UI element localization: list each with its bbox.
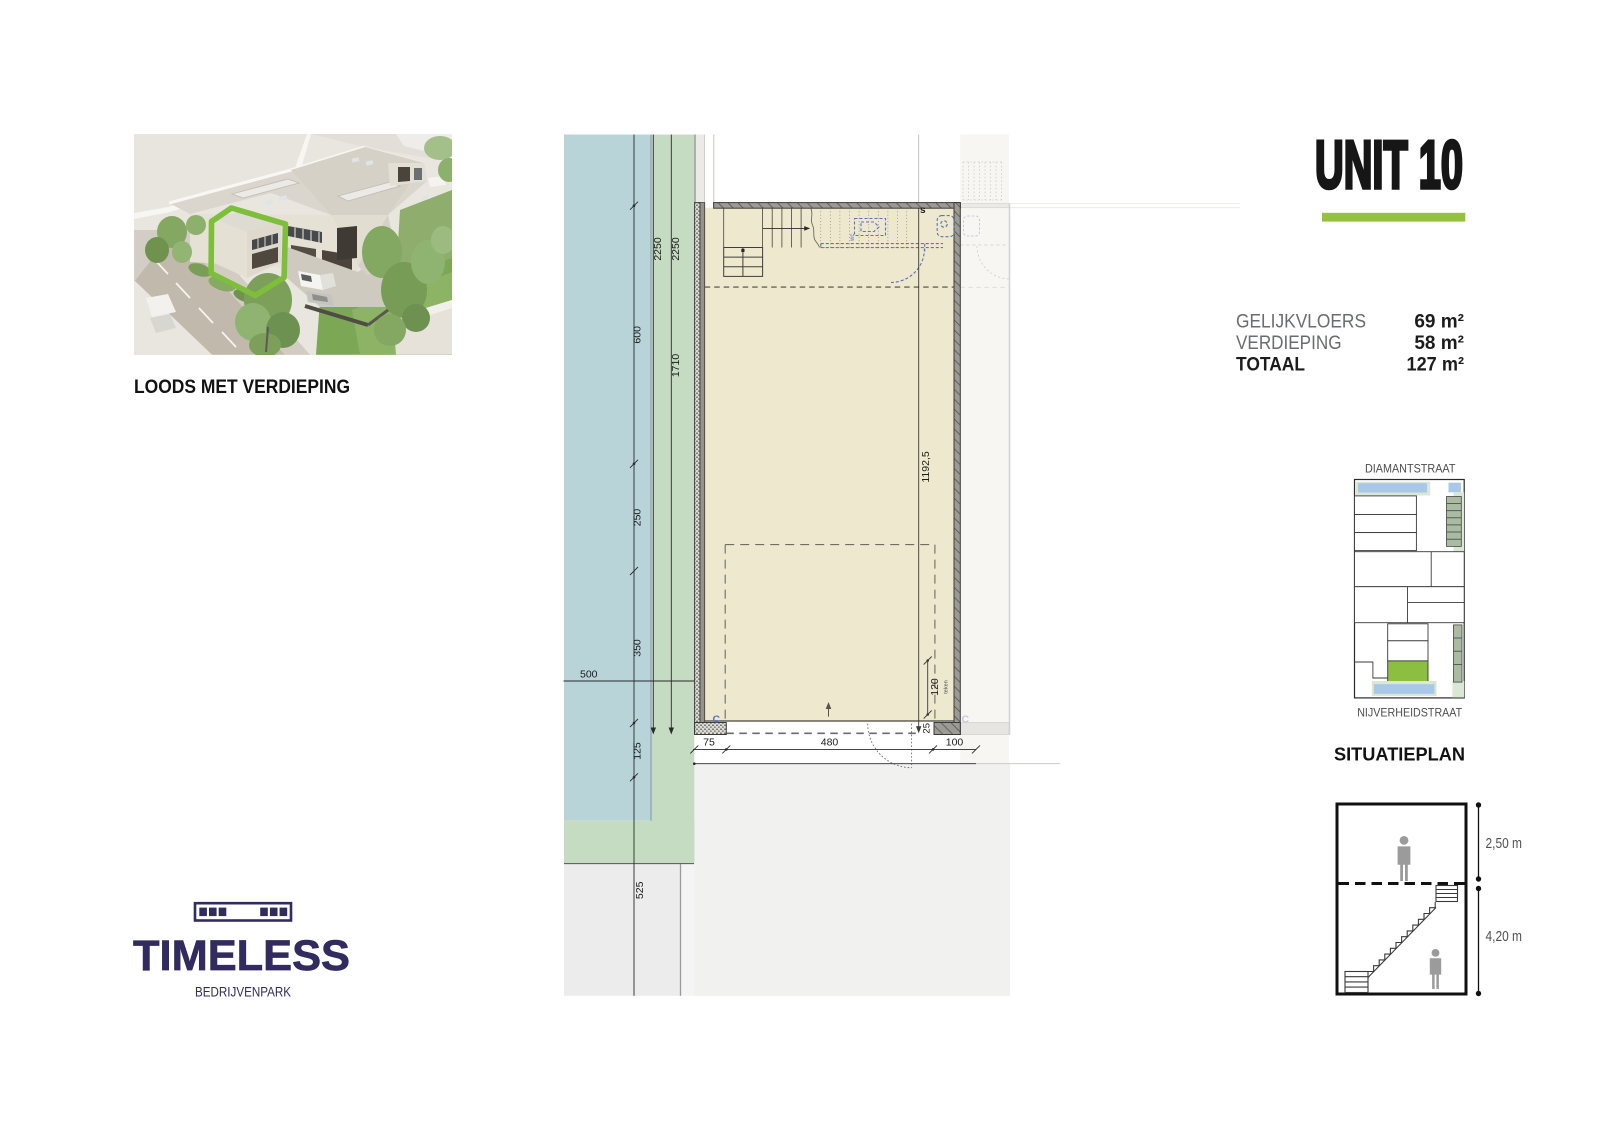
- svg-text:58 m²: 58 m²: [1414, 333, 1464, 354]
- svg-text:120: 120: [929, 678, 941, 696]
- svg-text:2250: 2250: [652, 237, 664, 261]
- svg-text:TOTAAL: TOTAAL: [1236, 354, 1305, 376]
- svg-text:LOODS MET VERDIEPING: LOODS MET VERDIEPING: [134, 376, 350, 398]
- svg-text:wc: wc: [850, 234, 856, 242]
- svg-text:1710: 1710: [670, 354, 682, 378]
- svg-text:25: 25: [922, 723, 933, 734]
- svg-text:NIJVERHEIDSTRAAT: NIJVERHEIDSTRAAT: [1357, 705, 1462, 719]
- svg-text:350: 350: [632, 639, 644, 657]
- svg-text:125: 125: [632, 742, 644, 760]
- svg-text:1192,5: 1192,5: [920, 451, 932, 482]
- svg-text:DIAMANTSTRAAT: DIAMANTSTRAAT: [1365, 462, 1456, 476]
- svg-text:500: 500: [580, 669, 598, 681]
- svg-text:TIMELESS: TIMELESS: [133, 932, 350, 980]
- svg-text:UNIT 10: UNIT 10: [1315, 127, 1463, 203]
- svg-text:480: 480: [821, 737, 839, 749]
- svg-text:69 m²: 69 m²: [1414, 312, 1464, 333]
- svg-text:C: C: [962, 714, 970, 726]
- svg-text:250: 250: [632, 509, 644, 527]
- svg-text:75: 75: [703, 737, 715, 749]
- svg-text:s: s: [920, 205, 926, 216]
- svg-text:127 m²: 127 m²: [1407, 355, 1465, 376]
- svg-text:4,20 m: 4,20 m: [1486, 929, 1523, 945]
- svg-text:100: 100: [946, 737, 964, 749]
- svg-text:2250: 2250: [670, 237, 682, 261]
- svg-text:2,50 m: 2,50 m: [1486, 836, 1523, 852]
- svg-text:teken: teken: [944, 680, 950, 693]
- svg-text:VERDIEPING: VERDIEPING: [1236, 332, 1342, 354]
- svg-text:525: 525: [634, 881, 646, 899]
- svg-text:BEDRIJVENPARK: BEDRIJVENPARK: [195, 985, 291, 1000]
- svg-text:600: 600: [632, 326, 644, 344]
- svg-text:GELIJKVLOERS: GELIJKVLOERS: [1236, 311, 1366, 333]
- svg-text:C: C: [713, 714, 721, 726]
- svg-text:SITUATIEPLAN: SITUATIEPLAN: [1334, 744, 1465, 765]
